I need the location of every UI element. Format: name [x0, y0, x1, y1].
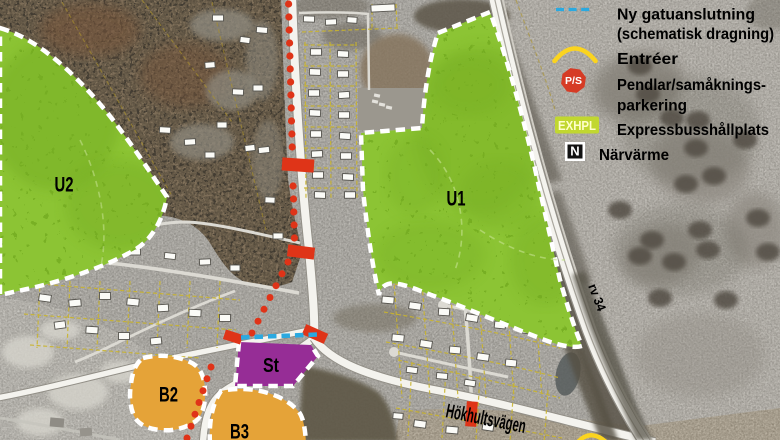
svg-text:U1: U1 — [447, 188, 466, 211]
svg-text:parkering: parkering — [617, 98, 687, 115]
svg-text:Entréer: Entréer — [617, 51, 678, 68]
svg-text:Närvärme: Närvärme — [599, 147, 669, 164]
svg-text:N: N — [570, 144, 579, 159]
svg-text:Expressbusshållplats: Expressbusshållplats — [617, 121, 769, 139]
svg-text:Ny gatuanslutning: Ny gatuanslutning — [617, 7, 755, 24]
svg-text:P/S: P/S — [565, 75, 582, 87]
svg-text:B3: B3 — [230, 421, 249, 441]
svg-text:EXHPL: EXHPL — [558, 118, 596, 133]
svg-text:B2: B2 — [159, 384, 178, 407]
svg-text:St: St — [263, 355, 279, 377]
svg-text:U2: U2 — [55, 174, 74, 197]
svg-text:(schematisk dragning): (schematisk dragning) — [617, 26, 774, 43]
svg-text:Pendlar/samåknings-: Pendlar/samåknings- — [617, 76, 766, 94]
